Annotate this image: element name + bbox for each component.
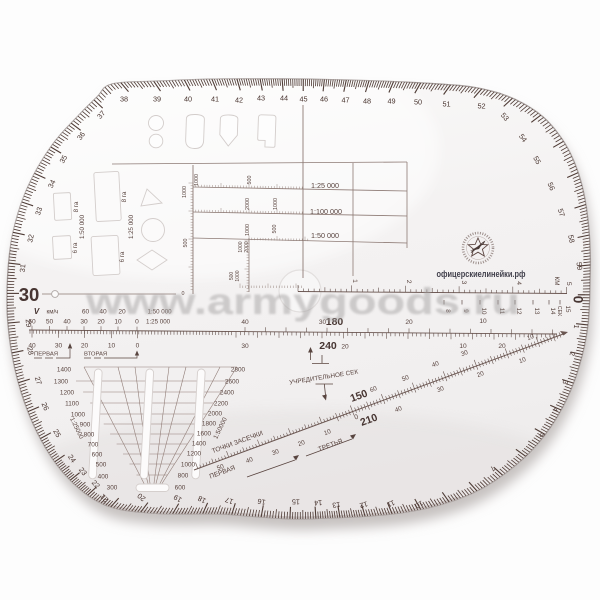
svg-text:1000: 1000 — [194, 174, 200, 186]
svg-text:15: 15 — [564, 306, 571, 313]
svg-text:600: 600 — [175, 485, 186, 492]
svg-text:1:50 000: 1:50 000 — [79, 214, 86, 239]
svg-text:51: 51 — [442, 99, 450, 108]
svg-text:40: 40 — [184, 94, 192, 103]
svg-text:700: 700 — [88, 442, 99, 449]
svg-text:5: 5 — [565, 282, 572, 286]
svg-text:41: 41 — [211, 94, 219, 103]
svg-text:10: 10 — [108, 343, 116, 350]
svg-text:1400: 1400 — [192, 441, 207, 448]
svg-text:1:25 000: 1:25 000 — [311, 181, 339, 190]
svg-text:1800: 1800 — [202, 421, 217, 428]
svg-text:офицерскиелинейки.рф: офицерскиелинейки.рф — [437, 269, 526, 279]
svg-text:2000: 2000 — [208, 411, 223, 418]
svg-text:8 га: 8 га — [73, 201, 80, 212]
svg-text:2000: 2000 — [244, 241, 250, 252]
svg-text:2600: 2600 — [225, 379, 240, 386]
svg-text:0: 0 — [571, 296, 586, 304]
svg-text:13: 13 — [332, 500, 342, 510]
svg-text:0: 0 — [136, 343, 140, 350]
svg-text:45: 45 — [299, 94, 307, 103]
svg-text:ВТОРАЯ: ВТОРАЯ — [84, 352, 107, 358]
svg-text:500: 500 — [247, 176, 253, 185]
svg-text:43: 43 — [257, 93, 265, 102]
svg-text:1:100 000: 1:100 000 — [310, 207, 342, 216]
svg-text:50: 50 — [414, 97, 422, 106]
svg-text:49: 49 — [387, 96, 395, 105]
svg-text:13: 13 — [533, 308, 540, 315]
svg-text:60: 60 — [28, 319, 36, 326]
svg-text:40: 40 — [28, 343, 36, 350]
svg-text:2200: 2200 — [214, 401, 229, 408]
svg-text:300: 300 — [107, 485, 118, 492]
svg-text:46: 46 — [320, 94, 328, 103]
svg-text:30: 30 — [55, 343, 63, 350]
svg-text:15: 15 — [292, 497, 300, 506]
svg-text:38: 38 — [120, 94, 128, 103]
svg-text:14: 14 — [549, 308, 556, 315]
svg-text:1000: 1000 — [245, 224, 251, 236]
svg-text:44: 44 — [280, 93, 288, 102]
svg-text:16: 16 — [257, 497, 267, 507]
svg-text:V: V — [34, 307, 40, 316]
svg-text:КМ: КМ — [553, 276, 560, 285]
svg-text:800: 800 — [84, 432, 95, 439]
svg-text:1300: 1300 — [54, 379, 69, 386]
svg-text:50: 50 — [46, 319, 54, 326]
svg-text:48: 48 — [363, 96, 371, 105]
svg-text:900: 900 — [80, 422, 91, 429]
svg-text:1:25 000: 1:25 000 — [128, 214, 135, 239]
svg-text:52: 52 — [477, 101, 485, 110]
svg-text:600: 600 — [92, 452, 103, 459]
svg-text:500: 500 — [96, 462, 107, 469]
svg-text:39: 39 — [153, 94, 161, 103]
svg-text:800: 800 — [178, 473, 189, 480]
svg-text:1000: 1000 — [181, 462, 196, 469]
svg-text:20: 20 — [81, 343, 89, 350]
svg-text:20: 20 — [341, 344, 349, 351]
svg-text:59: 59 — [575, 262, 585, 271]
svg-text:ПЕРВАЯ: ПЕРВАЯ — [34, 352, 58, 358]
svg-text:500: 500 — [183, 239, 189, 248]
svg-text:8 га: 8 га — [121, 191, 128, 202]
svg-text:40: 40 — [63, 319, 71, 326]
svg-text:30: 30 — [19, 284, 40, 305]
svg-text:1:50 000: 1:50 000 — [311, 231, 339, 240]
svg-text:14: 14 — [314, 498, 323, 508]
svg-text:1000: 1000 — [235, 270, 241, 281]
svg-text:400: 400 — [98, 474, 109, 481]
svg-text:30: 30 — [241, 343, 249, 350]
svg-text:2800: 2800 — [231, 367, 246, 374]
svg-text:2400: 2400 — [220, 390, 235, 397]
svg-text:500: 500 — [272, 225, 278, 234]
svg-text:6 га: 6 га — [119, 251, 126, 262]
svg-text:1200: 1200 — [187, 451, 202, 458]
svg-text:СЕК: СЕК — [556, 306, 562, 316]
svg-text:42: 42 — [235, 95, 243, 104]
svg-text:6 га: 6 га — [72, 242, 79, 253]
svg-text:47: 47 — [341, 95, 349, 104]
svg-text:1000: 1000 — [273, 198, 279, 210]
svg-text:2000: 2000 — [245, 198, 251, 210]
svg-text:км/ч: км/ч — [47, 309, 59, 316]
svg-text:240: 240 — [319, 340, 337, 352]
svg-text:www.armygoods.ru: www.armygoods.ru — [85, 281, 520, 322]
svg-text:1200: 1200 — [60, 390, 75, 397]
svg-text:1600: 1600 — [197, 431, 212, 438]
svg-text:20: 20 — [498, 343, 506, 350]
svg-text:1100: 1100 — [65, 401, 79, 408]
svg-text:31: 31 — [18, 264, 28, 273]
svg-text:1000: 1000 — [182, 186, 188, 198]
svg-text:1400: 1400 — [57, 367, 72, 374]
